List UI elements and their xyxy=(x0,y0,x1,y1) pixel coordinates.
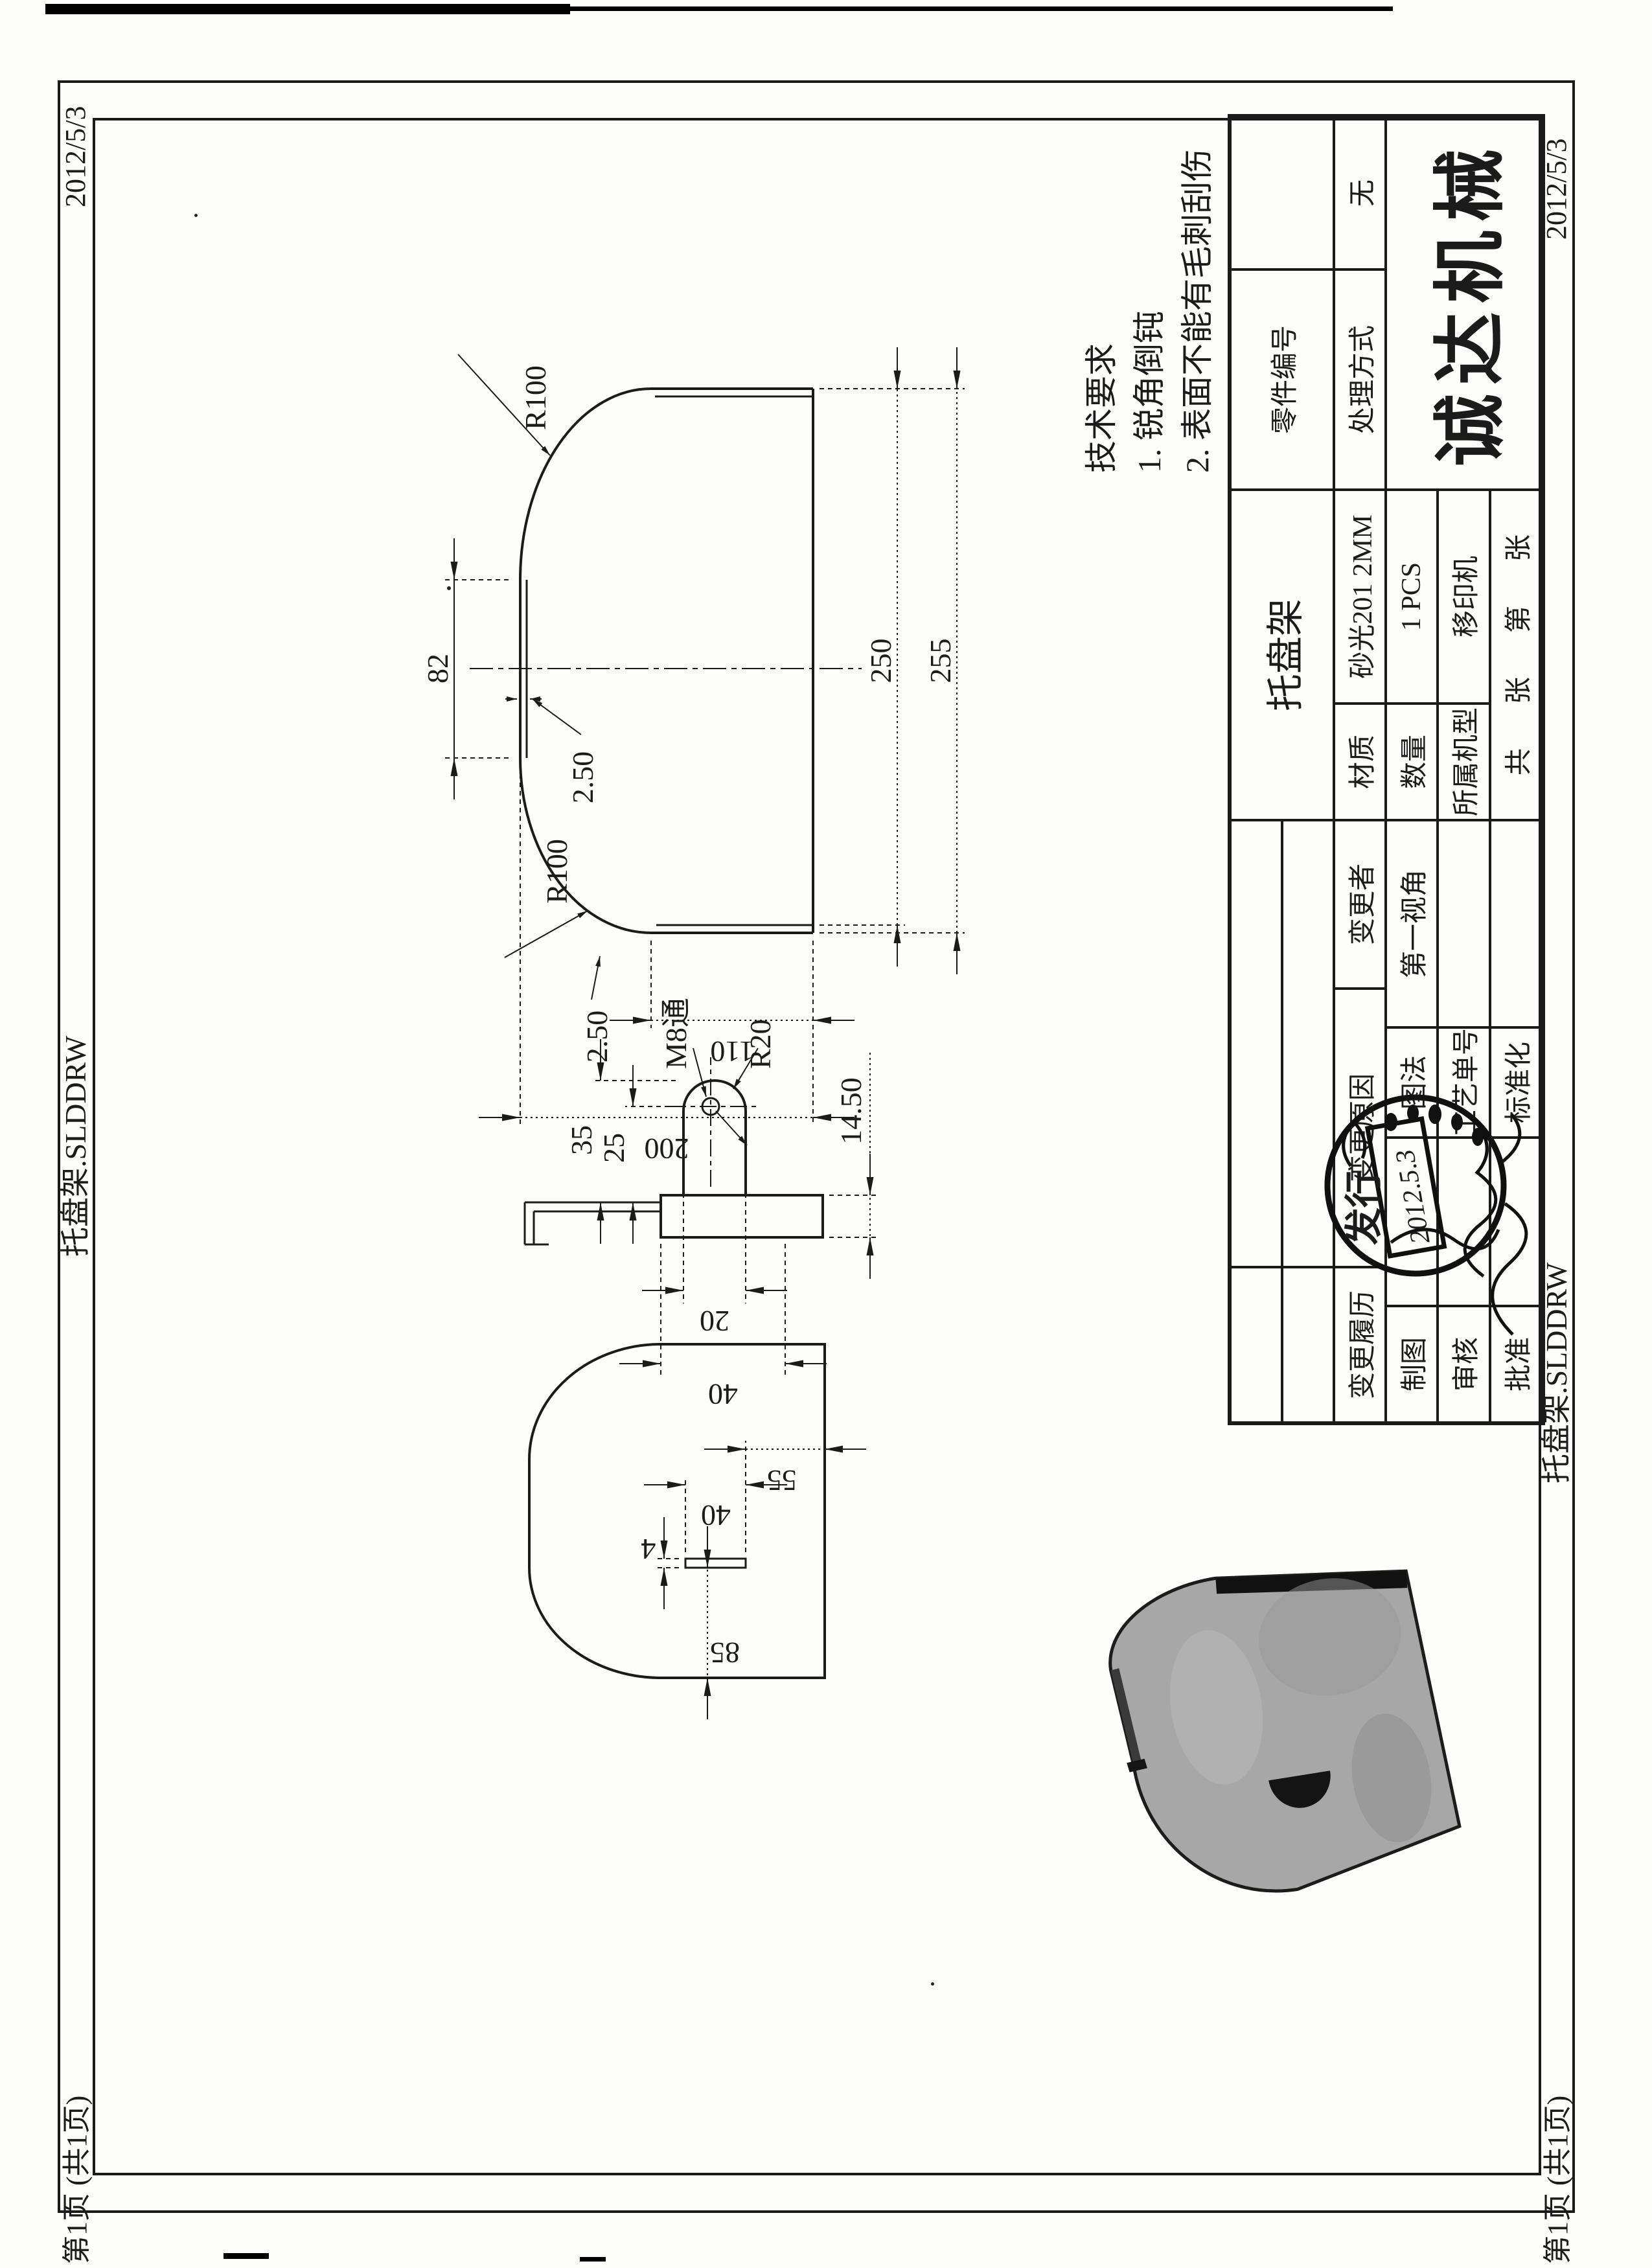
stamp-overlay: 发行 2012.5.3 xyxy=(55,78,1577,2216)
stamp-text: 发行 xyxy=(1343,1170,1385,1245)
scan-artifact-mark xyxy=(224,2253,269,2259)
drawing-sheet: 82 250 255 110 200 2.50 2.50 R100 R100 3… xyxy=(55,78,1577,2216)
scan-artifact-mark xyxy=(580,2257,606,2262)
stamp-smudge-marks xyxy=(1384,1105,1484,1146)
stamp-texts: 发行 2012.5.3 xyxy=(1343,1147,1436,1246)
scan-artifact-bar xyxy=(45,4,570,14)
scanned-drawing-page: 82 250 255 110 200 2.50 2.50 R100 R100 3… xyxy=(0,0,1652,2268)
scan-artifact-line xyxy=(570,6,1393,11)
